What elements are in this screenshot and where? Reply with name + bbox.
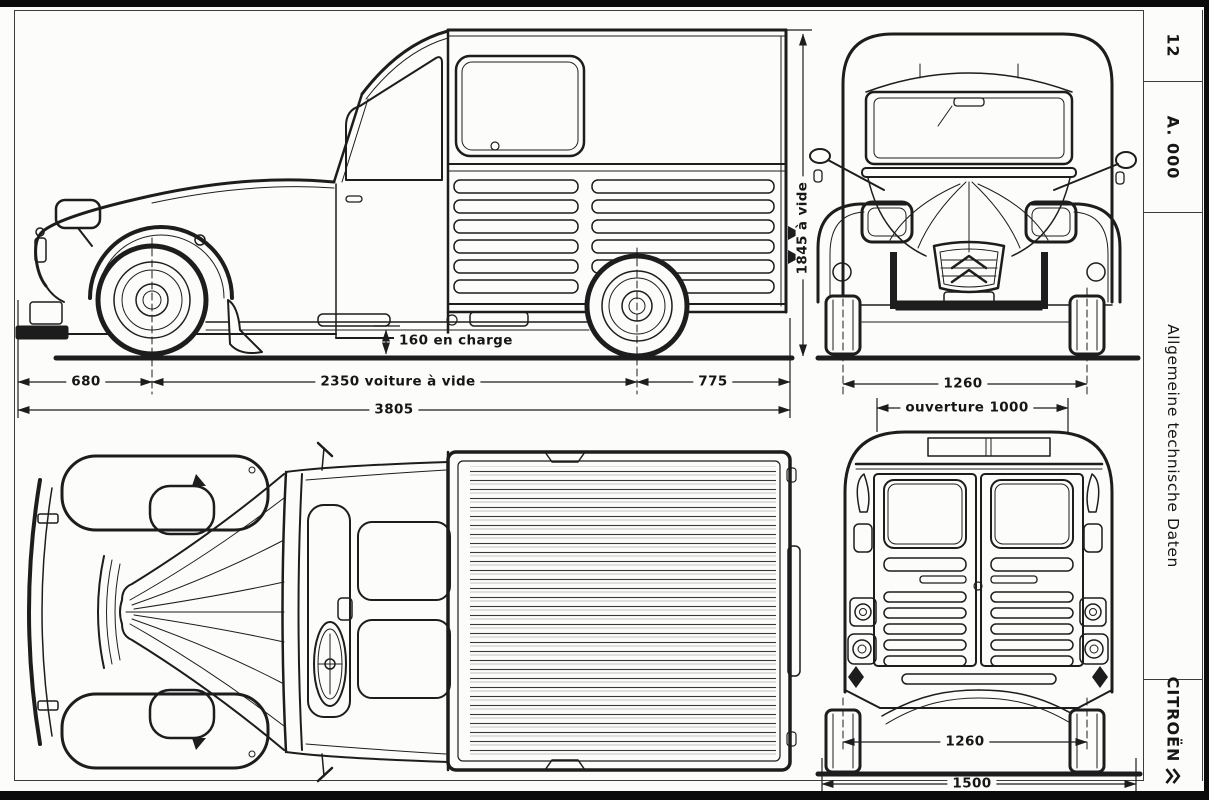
scan-edge-right xyxy=(1204,0,1209,800)
dim-label-ground-clearance: 160 en charge xyxy=(394,334,518,349)
brand-logo: CITROËN xyxy=(1164,677,1183,785)
dim-label-overall-length: 3805 xyxy=(369,403,418,418)
sidebar-brand-cell: CITROËN xyxy=(1144,680,1202,781)
sidebar-section-code-cell: A. 000 xyxy=(1144,82,1202,213)
scan-edge-bottom xyxy=(0,791,1209,800)
page-number: 12 xyxy=(1163,33,1182,57)
dim-label-front-track: 1260 xyxy=(938,377,987,392)
dim-label-door-opening: ouverture 1000 xyxy=(900,401,1033,416)
sidebar-page-number-cell: 12 xyxy=(1144,10,1202,82)
sidebar-section-title-cell: Allgemeine technische Daten xyxy=(1144,213,1202,680)
dim-label-front-overhang: 680 xyxy=(66,375,105,390)
dim-label-overall-height: 1845 à vide xyxy=(796,177,811,280)
manual-page: { "sidebar": { "page_number": "12", "sec… xyxy=(0,0,1209,800)
dim-label-wheelbase: 2350 voiture à vide xyxy=(315,375,480,390)
section-title: Allgemeine technische Daten xyxy=(1164,324,1182,568)
sidebar: 12 A. 000 Allgemeine technische Daten CI… xyxy=(1143,10,1203,781)
dim-label-overall-width: 1500 xyxy=(947,777,996,792)
citroen-double-chevron-icon xyxy=(1165,767,1181,784)
dim-label-rear-track: 1260 xyxy=(940,735,989,750)
dim-label-rear-overhang: 775 xyxy=(693,375,732,390)
section-code: A. 000 xyxy=(1164,115,1183,179)
rear-view xyxy=(818,432,1140,774)
top-view xyxy=(29,443,800,781)
brand-name: CITROËN xyxy=(1164,677,1183,763)
scan-edge-top xyxy=(0,0,1209,7)
front-view xyxy=(810,34,1138,394)
